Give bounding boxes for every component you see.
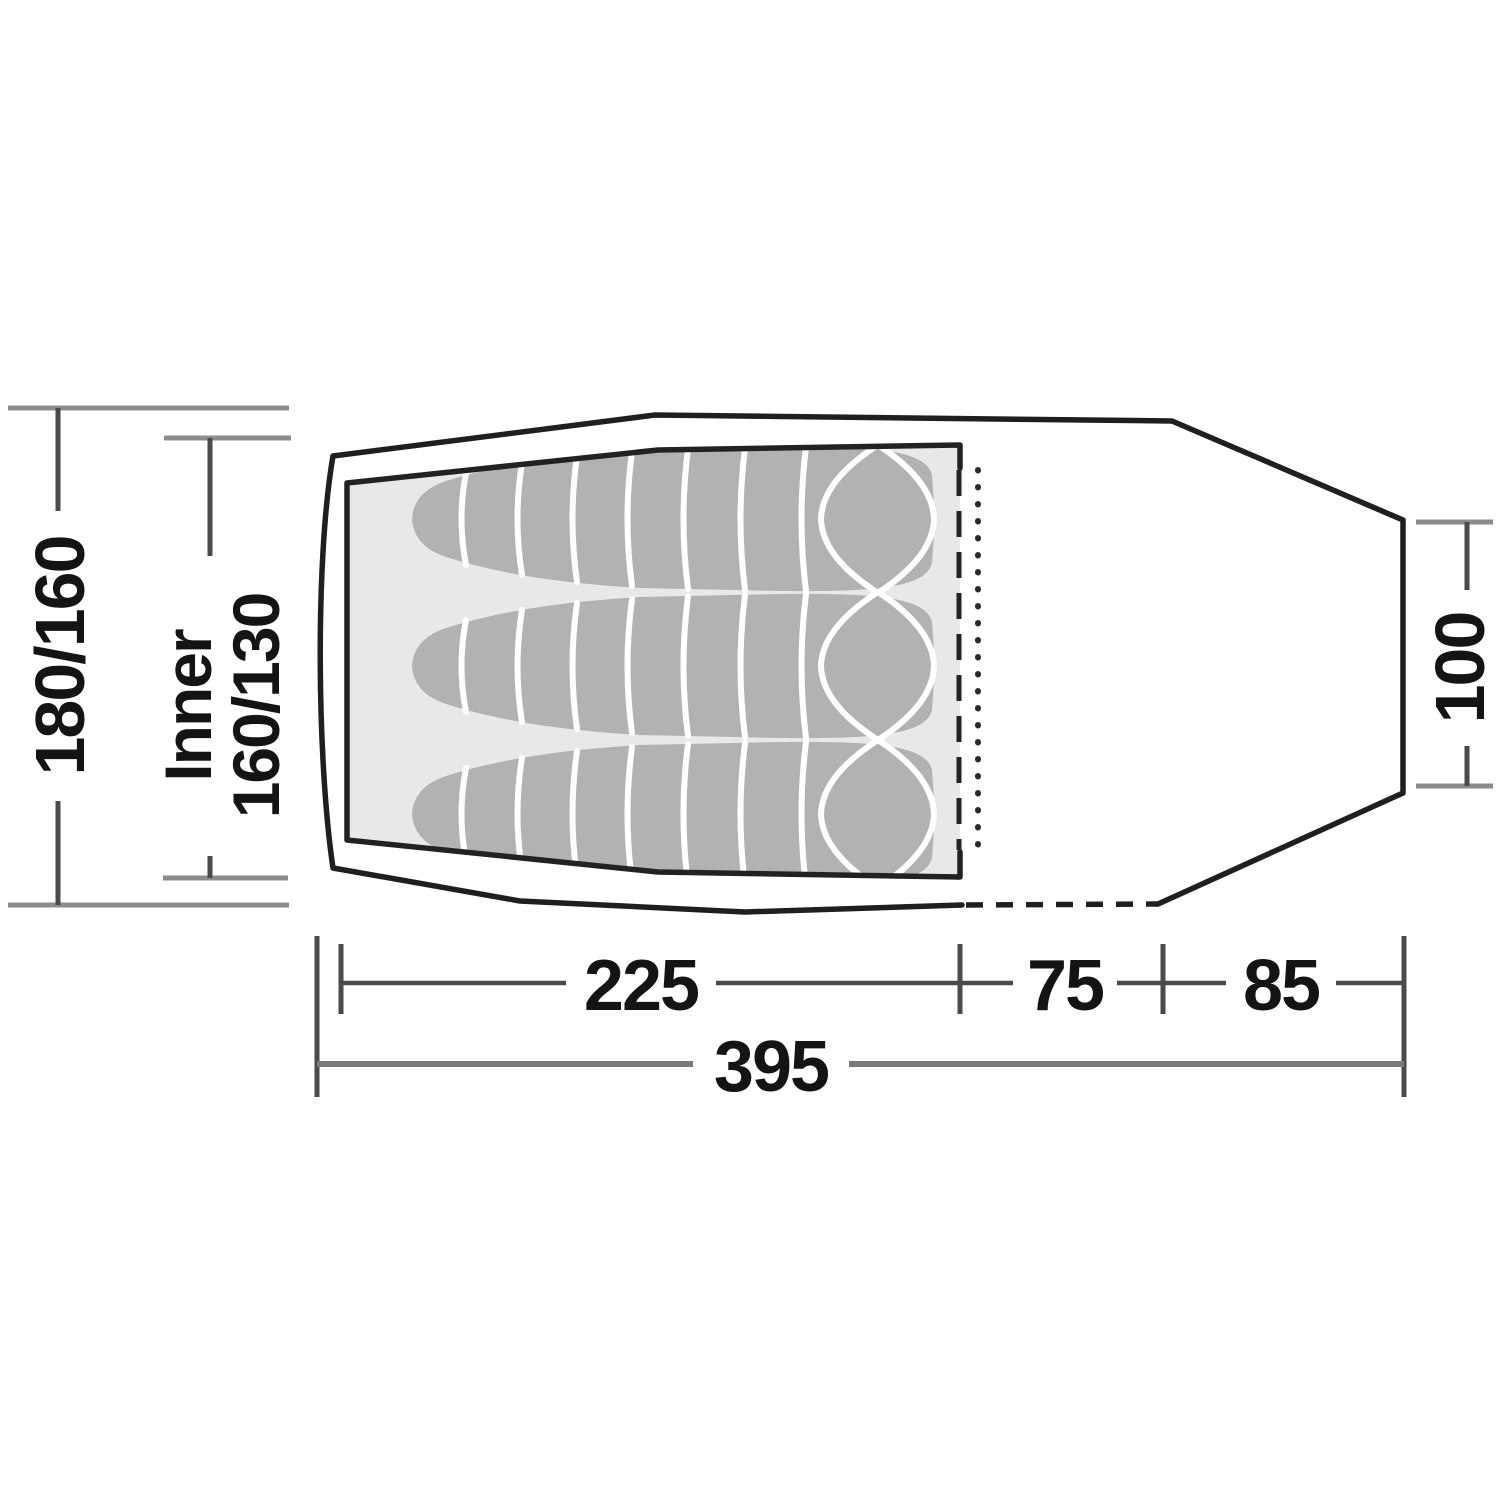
dim-label-inner-width: 160/130: [219, 594, 293, 819]
dim-total-length: 395: [317, 1027, 1404, 1107]
tent-diagram-svg: 180/160 Inner 160/130 100 225 75: [0, 0, 1500, 1500]
dim-label-porch-length: 85: [1243, 946, 1320, 1026]
dim-label-porch-height: 100: [1421, 613, 1499, 724]
sleeping-bags-group: [412, 445, 935, 888]
dim-label-inner-length: 225: [584, 946, 699, 1026]
tent-dimension-diagram: 180/160 Inner 160/130 100 225 75: [0, 0, 1500, 1500]
dim-label-door-length: 75: [1027, 946, 1104, 1026]
dim-porch-height: 100: [1416, 522, 1499, 786]
dim-inner-width: Inner 160/130: [151, 438, 293, 878]
dim-label-total-length: 395: [714, 1027, 829, 1107]
dim-label-outer-width: 180/160: [21, 536, 99, 775]
dim-label-inner-prefix: Inner: [151, 629, 225, 782]
dim-bottom-row: 225 75 85: [317, 936, 1404, 1097]
